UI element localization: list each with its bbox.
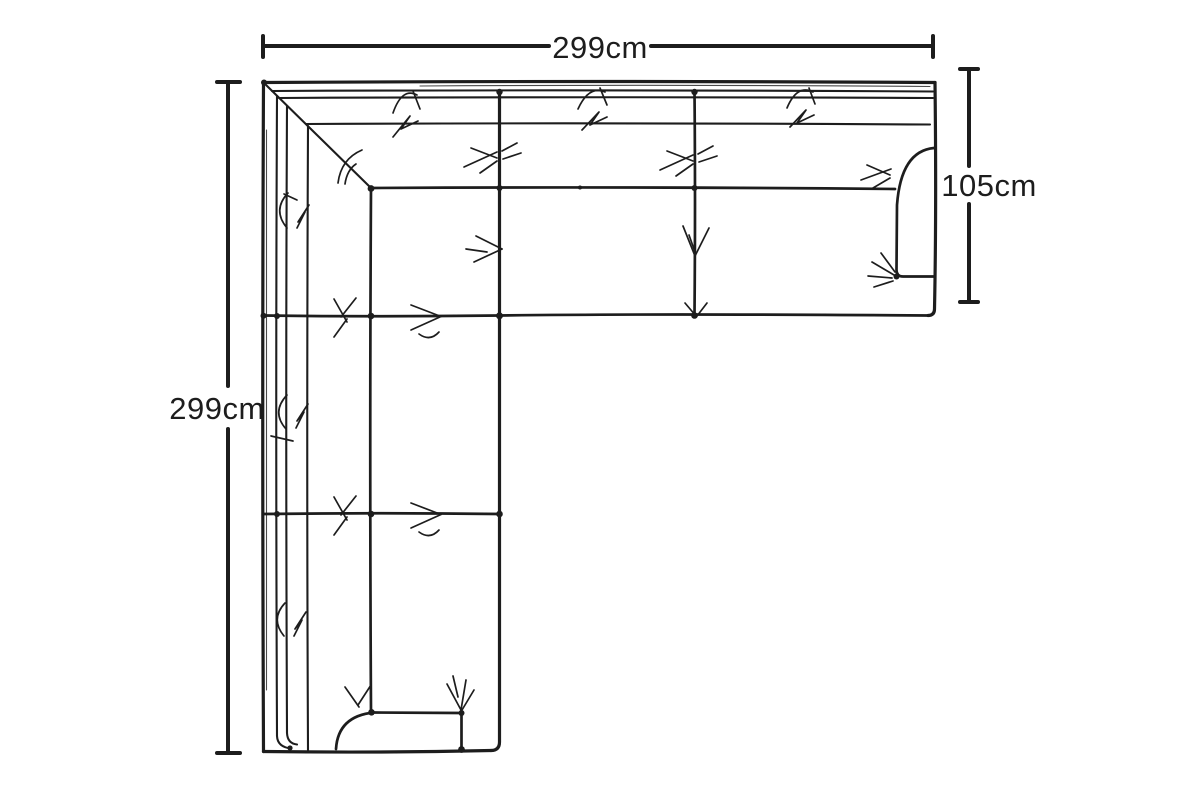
tuft-armrest-bottom-seam — [447, 676, 474, 710]
sofa-outline-ghost-stroke-left — [266, 130, 267, 690]
armrest-bottom-inner-edge — [336, 713, 462, 750]
sofa-outline-left-edge — [263, 83, 264, 752]
tuft-armrest-right-bottom — [868, 253, 895, 287]
sofa-sketch — [261, 80, 936, 753]
dimension-left: 299cm — [169, 82, 265, 753]
sofa-plan-svg: 299cm 299cm 105cm — [0, 0, 1200, 800]
seam-junction-dots — [261, 80, 900, 753]
back-cushion-top-line-top — [306, 123, 930, 124]
sofa-outline-bottom-edge — [264, 751, 492, 753]
crease-back-left-3 — [277, 603, 306, 636]
crease-back-left-1 — [280, 193, 309, 228]
back-seam-left-2 — [286, 106, 297, 745]
armrest-bottom — [336, 713, 462, 751]
back-seam-top-2 — [279, 97, 933, 98]
tuft-division1-arrow — [411, 305, 441, 338]
tuft-division2-arrow — [411, 503, 441, 536]
sofa-plan-diagram: 299cm 299cm 105cm — [0, 0, 1200, 800]
back-panel-lines-left — [276, 96, 371, 750]
cushion-division-seams — [263, 92, 695, 515]
tuft-seat-seam-right — [466, 236, 502, 262]
dimension-top: 299cm — [263, 30, 933, 65]
seat-division-left-section — [263, 513, 500, 514]
tuft-back-seam-1 — [464, 143, 521, 173]
sofa-front-edge-and-left-division-1 — [263, 315, 928, 317]
tuft-back-seam-2 — [660, 146, 717, 176]
armrest-right — [897, 148, 935, 277]
back-cushion-front-line-top — [371, 187, 895, 189]
back-cushion-front-line-left — [370, 188, 371, 712]
back-cushion-top-line-left — [307, 126, 308, 750]
sofa-outline-back-top — [264, 82, 935, 83]
tuft-division2-birdfoot — [334, 496, 356, 535]
dimension-top-label: 299cm — [552, 30, 648, 65]
sofa-outline-right-edge — [928, 83, 936, 316]
back-panel-lines-top — [272, 90, 933, 189]
dimension-right-label: 105cm — [941, 168, 1037, 203]
armrest-right-inner-edge — [897, 148, 935, 277]
tuft-armrest-bottom-left — [345, 685, 371, 707]
dimension-left-label: 299cm — [169, 391, 265, 426]
sofa-outline-ghost-stroke-top — [420, 85, 930, 86]
crease-back-top-3 — [787, 88, 815, 127]
tuft-armrest-right-top — [861, 165, 891, 188]
dimension-right: 105cm — [941, 69, 1037, 302]
seat-division-top-section — [695, 92, 696, 316]
